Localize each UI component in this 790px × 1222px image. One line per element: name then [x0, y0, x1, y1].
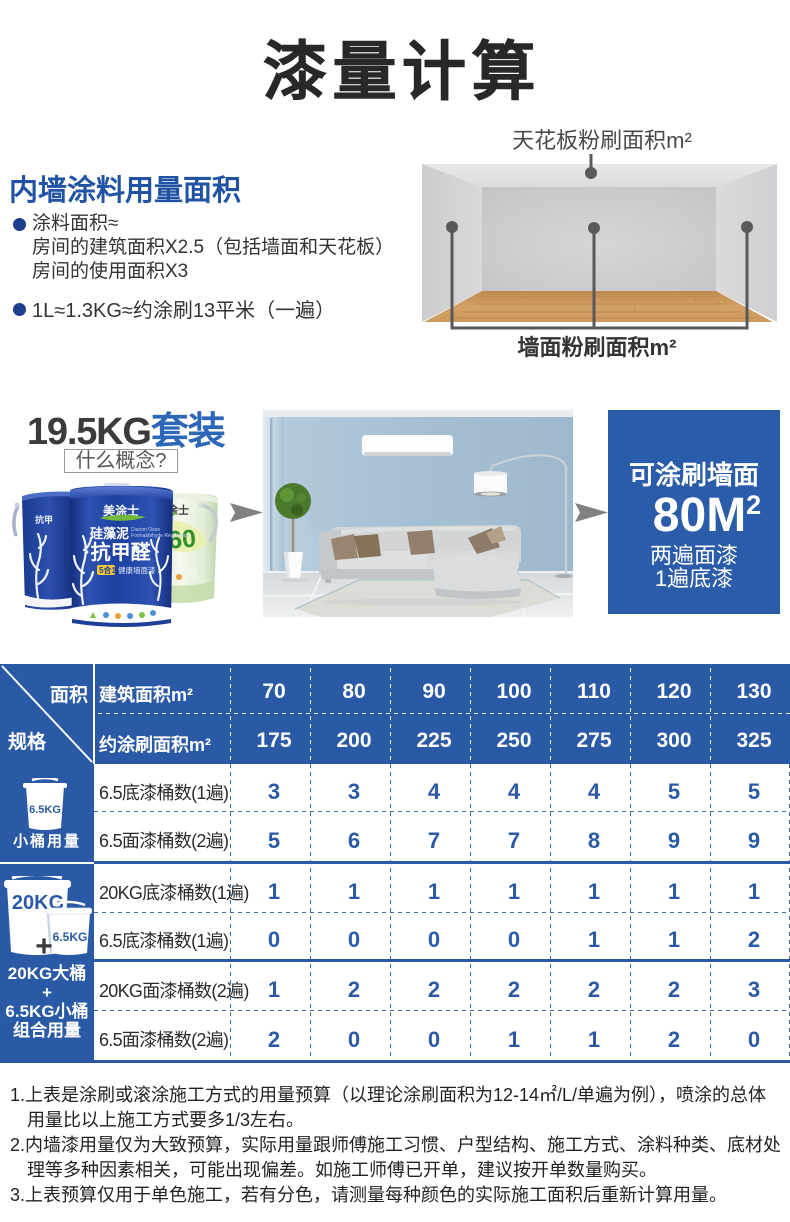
svg-text:5合1: 5合1 [99, 565, 116, 575]
svg-text:Formaldehyde Resistance: Formaldehyde Resistance [131, 533, 189, 539]
svg-text:硅藻泥: 硅藻泥 [90, 526, 129, 541]
svg-text:6.5KG: 6.5KG [53, 930, 88, 944]
svg-text:墙面粉刷面积m²: 墙面粉刷面积m² [518, 335, 677, 360]
svg-text:天花板粉刷面积m²: 天花板粉刷面积m² [512, 128, 692, 153]
svg-text:6.5KG: 6.5KG [29, 804, 61, 816]
svg-text:·抗甲醛: ·抗甲醛 [84, 540, 152, 564]
svg-text:+: + [35, 930, 53, 960]
svg-text:抗甲: 抗甲 [35, 514, 53, 525]
